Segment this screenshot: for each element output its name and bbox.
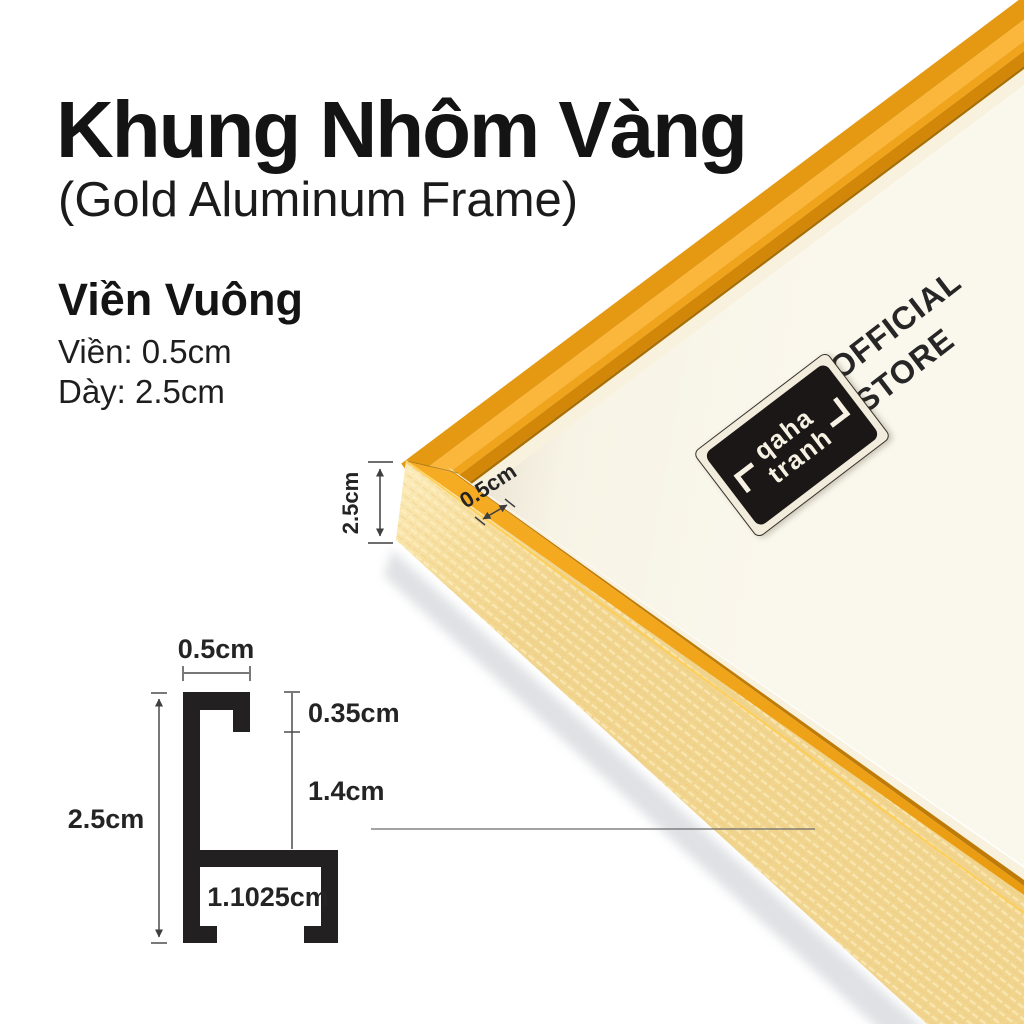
- spec-border: Viền: 0.5cm: [58, 333, 232, 371]
- profile-front-hook: [233, 710, 250, 732]
- profile-right-foot: [304, 926, 338, 943]
- spec-heading: Viền Vuông: [58, 274, 303, 326]
- page-subtitle: (Gold Aluminum Frame): [58, 172, 578, 228]
- lip-label: 0.35cm: [308, 698, 400, 728]
- corner-bracket-icon: [820, 397, 851, 428]
- page-title: Khung Nhôm Vàng: [56, 84, 746, 176]
- topwidth-label: 0.5cm: [178, 634, 255, 664]
- profile-bottom-bar: [200, 850, 338, 867]
- product-spec-image: 2.5cm 0.5cm 0.5cm 2.5c: [0, 0, 1024, 1024]
- totalheight-label: 2.5cm: [68, 804, 145, 834]
- corner-bracket-icon: [734, 462, 765, 493]
- spec-thickness: Dày: 2.5cm: [58, 373, 225, 411]
- channel-label: 1.4cm: [308, 776, 385, 806]
- profile-left-foot: [183, 926, 217, 943]
- thickness-label: 2.5cm: [338, 472, 363, 534]
- profile-left-stem: [183, 692, 200, 943]
- basewidth-label: 1.1025cm: [207, 882, 329, 912]
